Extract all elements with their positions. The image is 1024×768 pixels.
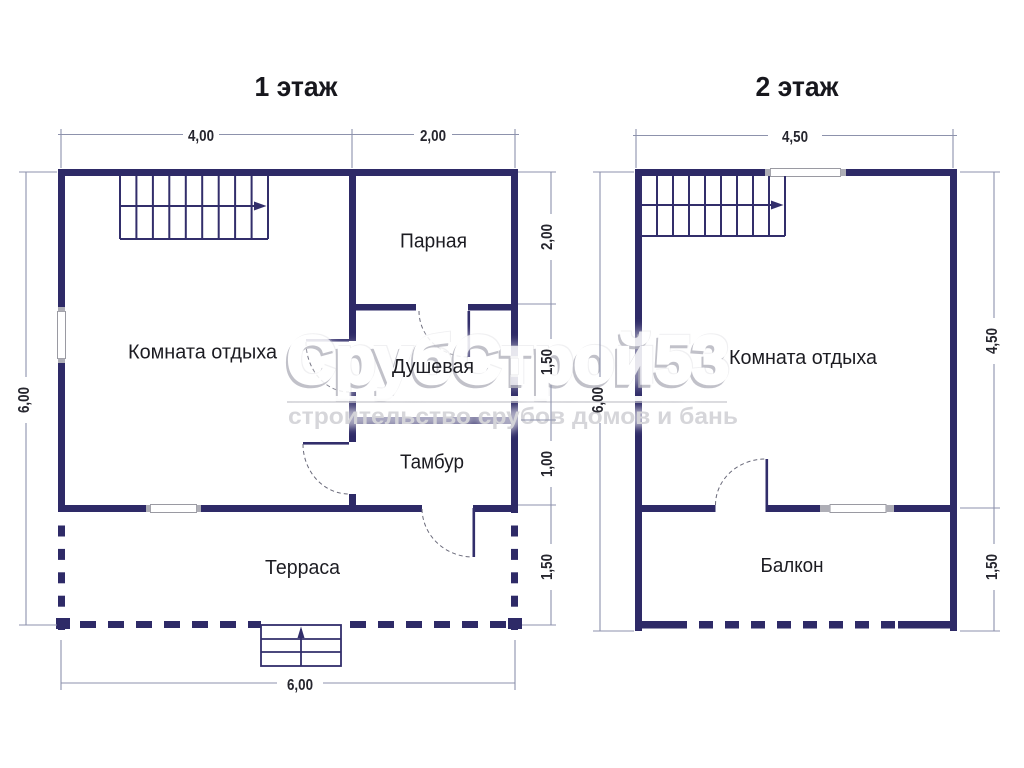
svg-text:Балкон: Балкон (761, 554, 824, 577)
svg-text:6,00: 6,00 (16, 387, 33, 413)
svg-text:Парная: Парная (400, 230, 467, 253)
svg-text:1,50: 1,50 (539, 349, 556, 375)
svg-text:Комната отдыха: Комната отдыха (128, 341, 278, 364)
svg-text:Душевая: Душевая (392, 355, 474, 378)
svg-text:2,00: 2,00 (420, 128, 446, 145)
svg-text:Тамбур: Тамбур (400, 451, 464, 474)
svg-text:4,50: 4,50 (782, 129, 808, 146)
svg-text:2,00: 2,00 (539, 224, 556, 250)
svg-text:4,00: 4,00 (188, 128, 214, 145)
svg-text:1 этаж: 1 этаж (255, 71, 338, 102)
svg-text:1,50: 1,50 (539, 554, 556, 580)
svg-text:1,00: 1,00 (539, 451, 556, 477)
svg-text:6,00: 6,00 (287, 677, 313, 694)
svg-text:2 этаж: 2 этаж (756, 71, 839, 102)
svg-text:6,00: 6,00 (590, 387, 607, 413)
svg-text:Терраса: Терраса (265, 556, 341, 579)
svg-text:1,50: 1,50 (984, 554, 1001, 580)
svg-text:4,50: 4,50 (984, 328, 1001, 354)
svg-text:строительство срубов домов и б: строительство срубов домов и бань (288, 403, 738, 429)
svg-text:Комната отдыха: Комната отдыха (729, 346, 878, 369)
svg-text:СрубСтрой53: СрубСтрой53 (287, 323, 729, 398)
